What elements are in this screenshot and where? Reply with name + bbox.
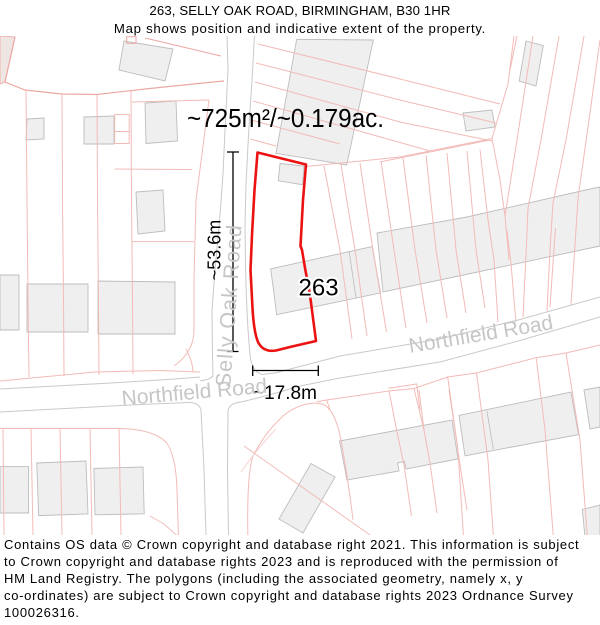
svg-text:263: 263 [299,275,339,302]
svg-text:~725m²/~0.179ac.: ~725m²/~0.179ac. [187,105,384,133]
